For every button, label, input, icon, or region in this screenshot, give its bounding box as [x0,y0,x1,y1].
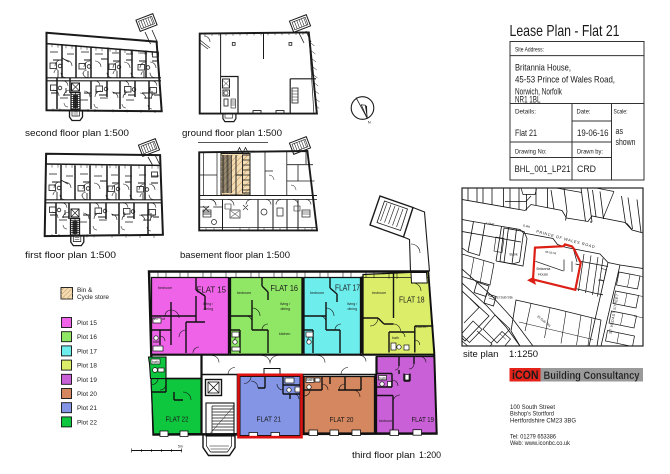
svg-text:19-06-16: 19-06-16 [577,128,609,139]
svg-text:FLAT 16: FLAT 16 [271,284,299,293]
svg-text:Plot 15: Plot 15 [77,320,97,327]
svg-text:FLAT 18: FLAT 18 [399,296,425,305]
svg-text:Hertfordshire CM23 3BG: Hertfordshire CM23 3BG [510,417,576,424]
svg-text:Plot 22: Plot 22 [77,419,97,426]
svg-text:kitchen: kitchen [279,332,290,336]
svg-text:FLAT 15: FLAT 15 [197,286,227,295]
svg-text:dining: dining [281,307,291,311]
svg-text:shown: shown [616,137,636,148]
svg-text:CRD: CRD [577,164,596,175]
svg-text:third floor plan: third floor plan [352,450,415,461]
svg-text:bedroom: bedroom [158,286,172,290]
svg-text:kitchen: kitchen [416,325,427,329]
svg-text:Building Consultancy: Building Consultancy [544,370,641,382]
svg-text:bath: bath [307,378,314,382]
svg-text:FLAT 17: FLAT 17 [335,284,360,293]
svg-text:FLAT 22: FLAT 22 [166,415,189,424]
svg-text:bath: bath [153,340,160,344]
svg-text:Plot 17: Plot 17 [77,348,97,355]
svg-text:Web: www.iconbc.co.uk: Web: www.iconbc.co.uk [510,440,571,447]
svg-text:Site Address:: Site Address: [515,47,544,54]
svg-text:bath: bath [152,360,159,364]
svg-text:45-53 Prince of Wales Road,: 45-53 Prince of Wales Road, [515,75,615,86]
svg-text:as: as [616,126,624,137]
svg-text:Drawing No:: Drawing No: [515,149,547,156]
svg-text:Cycle store: Cycle store [77,294,109,301]
svg-text:Scale:: Scale: [614,109,628,116]
svg-text:Plot 20: Plot 20 [77,391,97,398]
svg-text:NR1 1BL: NR1 1BL [515,94,541,105]
svg-text:Plot 21: Plot 21 [77,405,97,412]
svg-text:Plot 18: Plot 18 [77,363,97,370]
svg-text:Britannia: Britannia [537,267,551,271]
svg-text:bedroom: bedroom [379,419,393,423]
svg-text:FLAT 21: FLAT 21 [257,415,282,424]
svg-text:FLAT 19: FLAT 19 [412,415,435,424]
svg-text:WC: WC [152,317,158,321]
svg-text:1:200: 1:200 [419,450,441,461]
svg-text:bedroom: bedroom [237,291,251,295]
svg-text:Details:: Details: [515,109,536,116]
svg-text:Lease Plan - Flat 21: Lease Plan - Flat 21 [510,23,620,40]
svg-text:living /: living / [280,302,290,306]
svg-text:1:1250: 1:1250 [509,349,538,360]
svg-text:Drawn by:: Drawn by: [577,149,603,156]
svg-text:bath: bath [379,377,386,381]
svg-text:first floor plan 1:500: first floor plan 1:500 [25,250,116,261]
svg-text:Plot 16: Plot 16 [77,334,97,341]
svg-text:dining: dining [348,307,358,311]
svg-text:BHL_001_LP21: BHL_001_LP21 [515,164,571,175]
svg-text:Bin &: Bin & [77,287,93,294]
svg-text:bedroom: bedroom [310,291,324,295]
svg-text:El Sub Sta: El Sub Sta [497,296,513,300]
svg-text:Flat 21: Flat 21 [515,128,537,139]
svg-text:FLAT 20: FLAT 20 [330,415,354,424]
svg-text:5m: 5m [178,445,183,449]
svg-text:House: House [538,273,548,277]
svg-text:bath: bath [392,336,399,340]
svg-text:site plan: site plan [463,349,498,360]
svg-text:dining: dining [204,307,214,311]
svg-text:N: N [368,120,371,125]
svg-text:living /: living / [203,302,213,306]
svg-text:Plot 19: Plot 19 [77,377,97,384]
svg-text:Bank: Bank [510,253,518,257]
svg-text:second floor plan 1:500: second floor plan 1:500 [25,128,129,139]
svg-text:basement floor plan 1:500: basement floor plan 1:500 [180,250,290,261]
svg-text:ground floor plan 1:500: ground floor plan 1:500 [182,128,282,139]
svg-text:Britannia House,: Britannia House, [515,63,571,74]
svg-text:living /: living / [347,302,357,306]
svg-text:iCON: iCON [512,370,539,382]
svg-text:bedroom: bedroom [372,291,386,295]
svg-text:ut: ut [162,317,165,321]
svg-text:Date:: Date: [577,109,591,116]
